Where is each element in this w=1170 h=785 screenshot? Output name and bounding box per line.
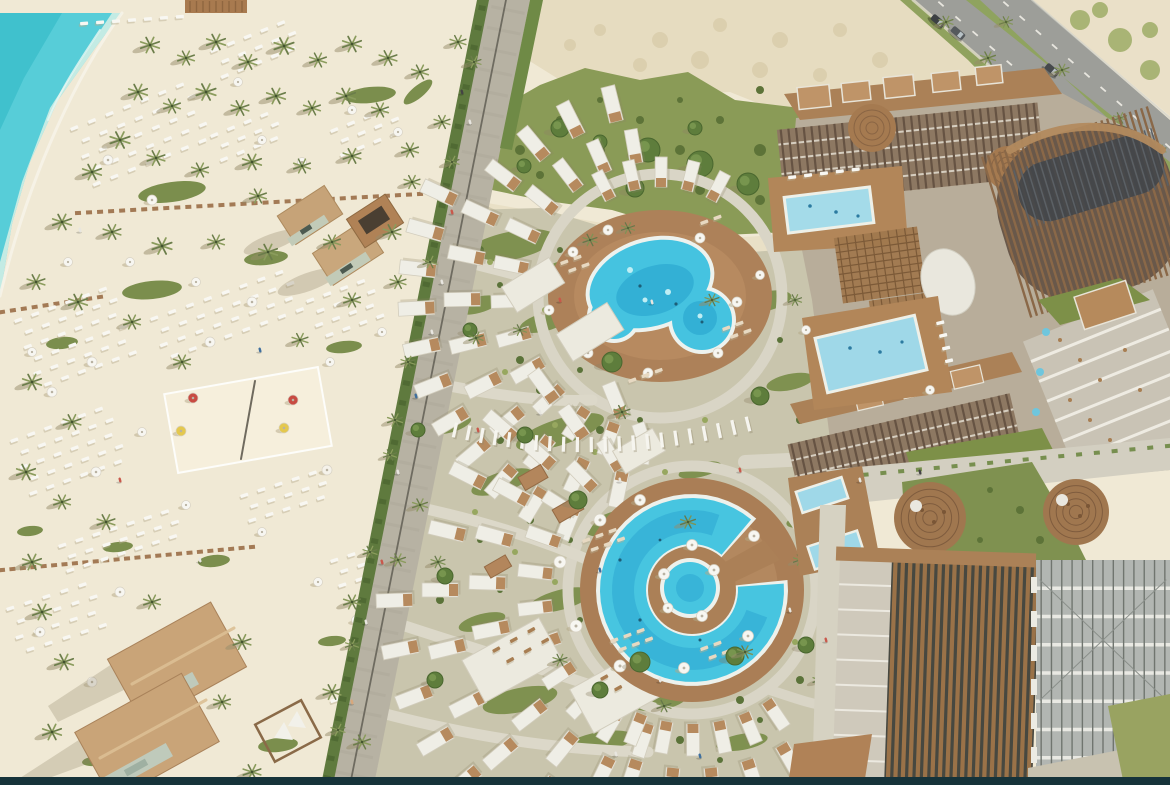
roof-pavilion-5 <box>975 65 1003 86</box>
roof-pavilion-4 <box>931 71 961 93</box>
resort-aerial-render <box>0 0 1170 785</box>
render-canvas <box>0 0 1170 785</box>
drum-pavilion-3 <box>894 482 966 554</box>
drum-white-blob-1 <box>910 500 922 512</box>
roof-pavilion-1 <box>797 84 831 109</box>
roof-pavilion-3 <box>883 74 915 98</box>
drum-pavilion-1 <box>848 104 896 152</box>
bottom-edge-bar <box>0 777 1170 785</box>
island-pool-deep <box>676 574 704 602</box>
drum-white-blob-2 <box>1056 494 1068 506</box>
drum-pavilion-4 <box>1043 479 1109 545</box>
roof-pavilion-2 <box>841 81 871 103</box>
